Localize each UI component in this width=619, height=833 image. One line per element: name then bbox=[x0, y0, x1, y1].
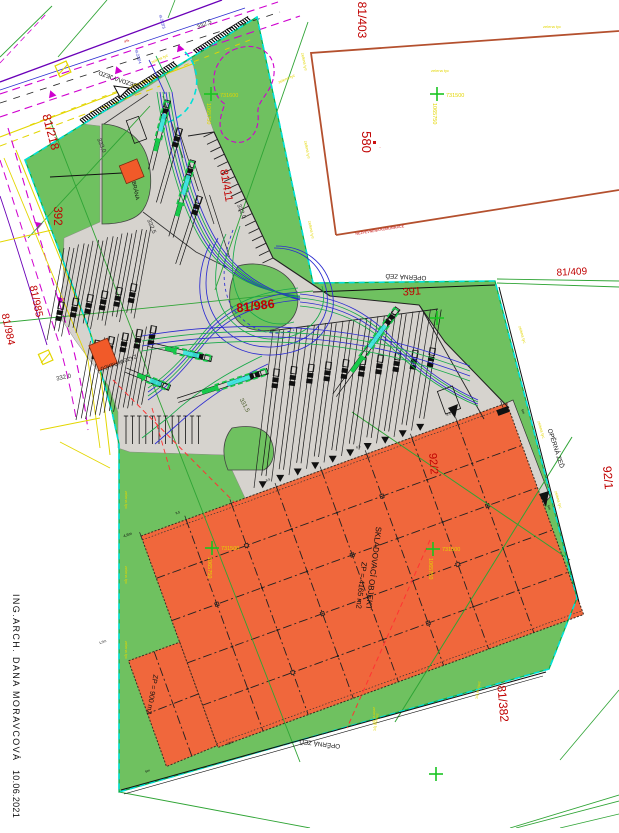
svg-text:zelena tyc: zelena tyc bbox=[124, 566, 129, 584]
svg-text:731500: 731500 bbox=[446, 93, 464, 99]
svg-text:81/409: 81/409 bbox=[556, 266, 588, 279]
svg-text:10.06.2021: 10.06.2021 bbox=[11, 770, 21, 818]
svg-text:81/403: 81/403 bbox=[355, 2, 369, 39]
svg-text:92/1: 92/1 bbox=[600, 465, 616, 490]
svg-text:zelena tyc: zelena tyc bbox=[124, 491, 129, 509]
svg-text:731500: 731500 bbox=[442, 547, 460, 553]
svg-text:392: 392 bbox=[51, 206, 63, 225]
svg-text:ING.ARCH. DANA MORAVCOVÁ: ING.ARCH. DANA MORAVCOVÁ bbox=[11, 594, 21, 761]
svg-text:731600: 731600 bbox=[220, 93, 238, 99]
svg-text:580: 580 bbox=[359, 131, 374, 153]
svg-text:1065750: 1065750 bbox=[427, 558, 433, 579]
svg-text:zelena tyc: zelena tyc bbox=[372, 707, 377, 725]
svg-text:391: 391 bbox=[402, 285, 421, 298]
svg-text:zelena tyc: zelena tyc bbox=[124, 641, 129, 659]
svg-text:1065750: 1065750 bbox=[206, 557, 212, 578]
svg-text:1065750: 1065750 bbox=[431, 103, 437, 124]
svg-text:zelena tyc: zelena tyc bbox=[543, 24, 561, 29]
svg-text:731500: 731500 bbox=[221, 546, 239, 552]
svg-text:zelena tyc: zelena tyc bbox=[431, 68, 449, 73]
svg-text:1065750: 1065750 bbox=[205, 103, 211, 124]
svg-text:92/2: 92/2 bbox=[426, 453, 440, 475]
